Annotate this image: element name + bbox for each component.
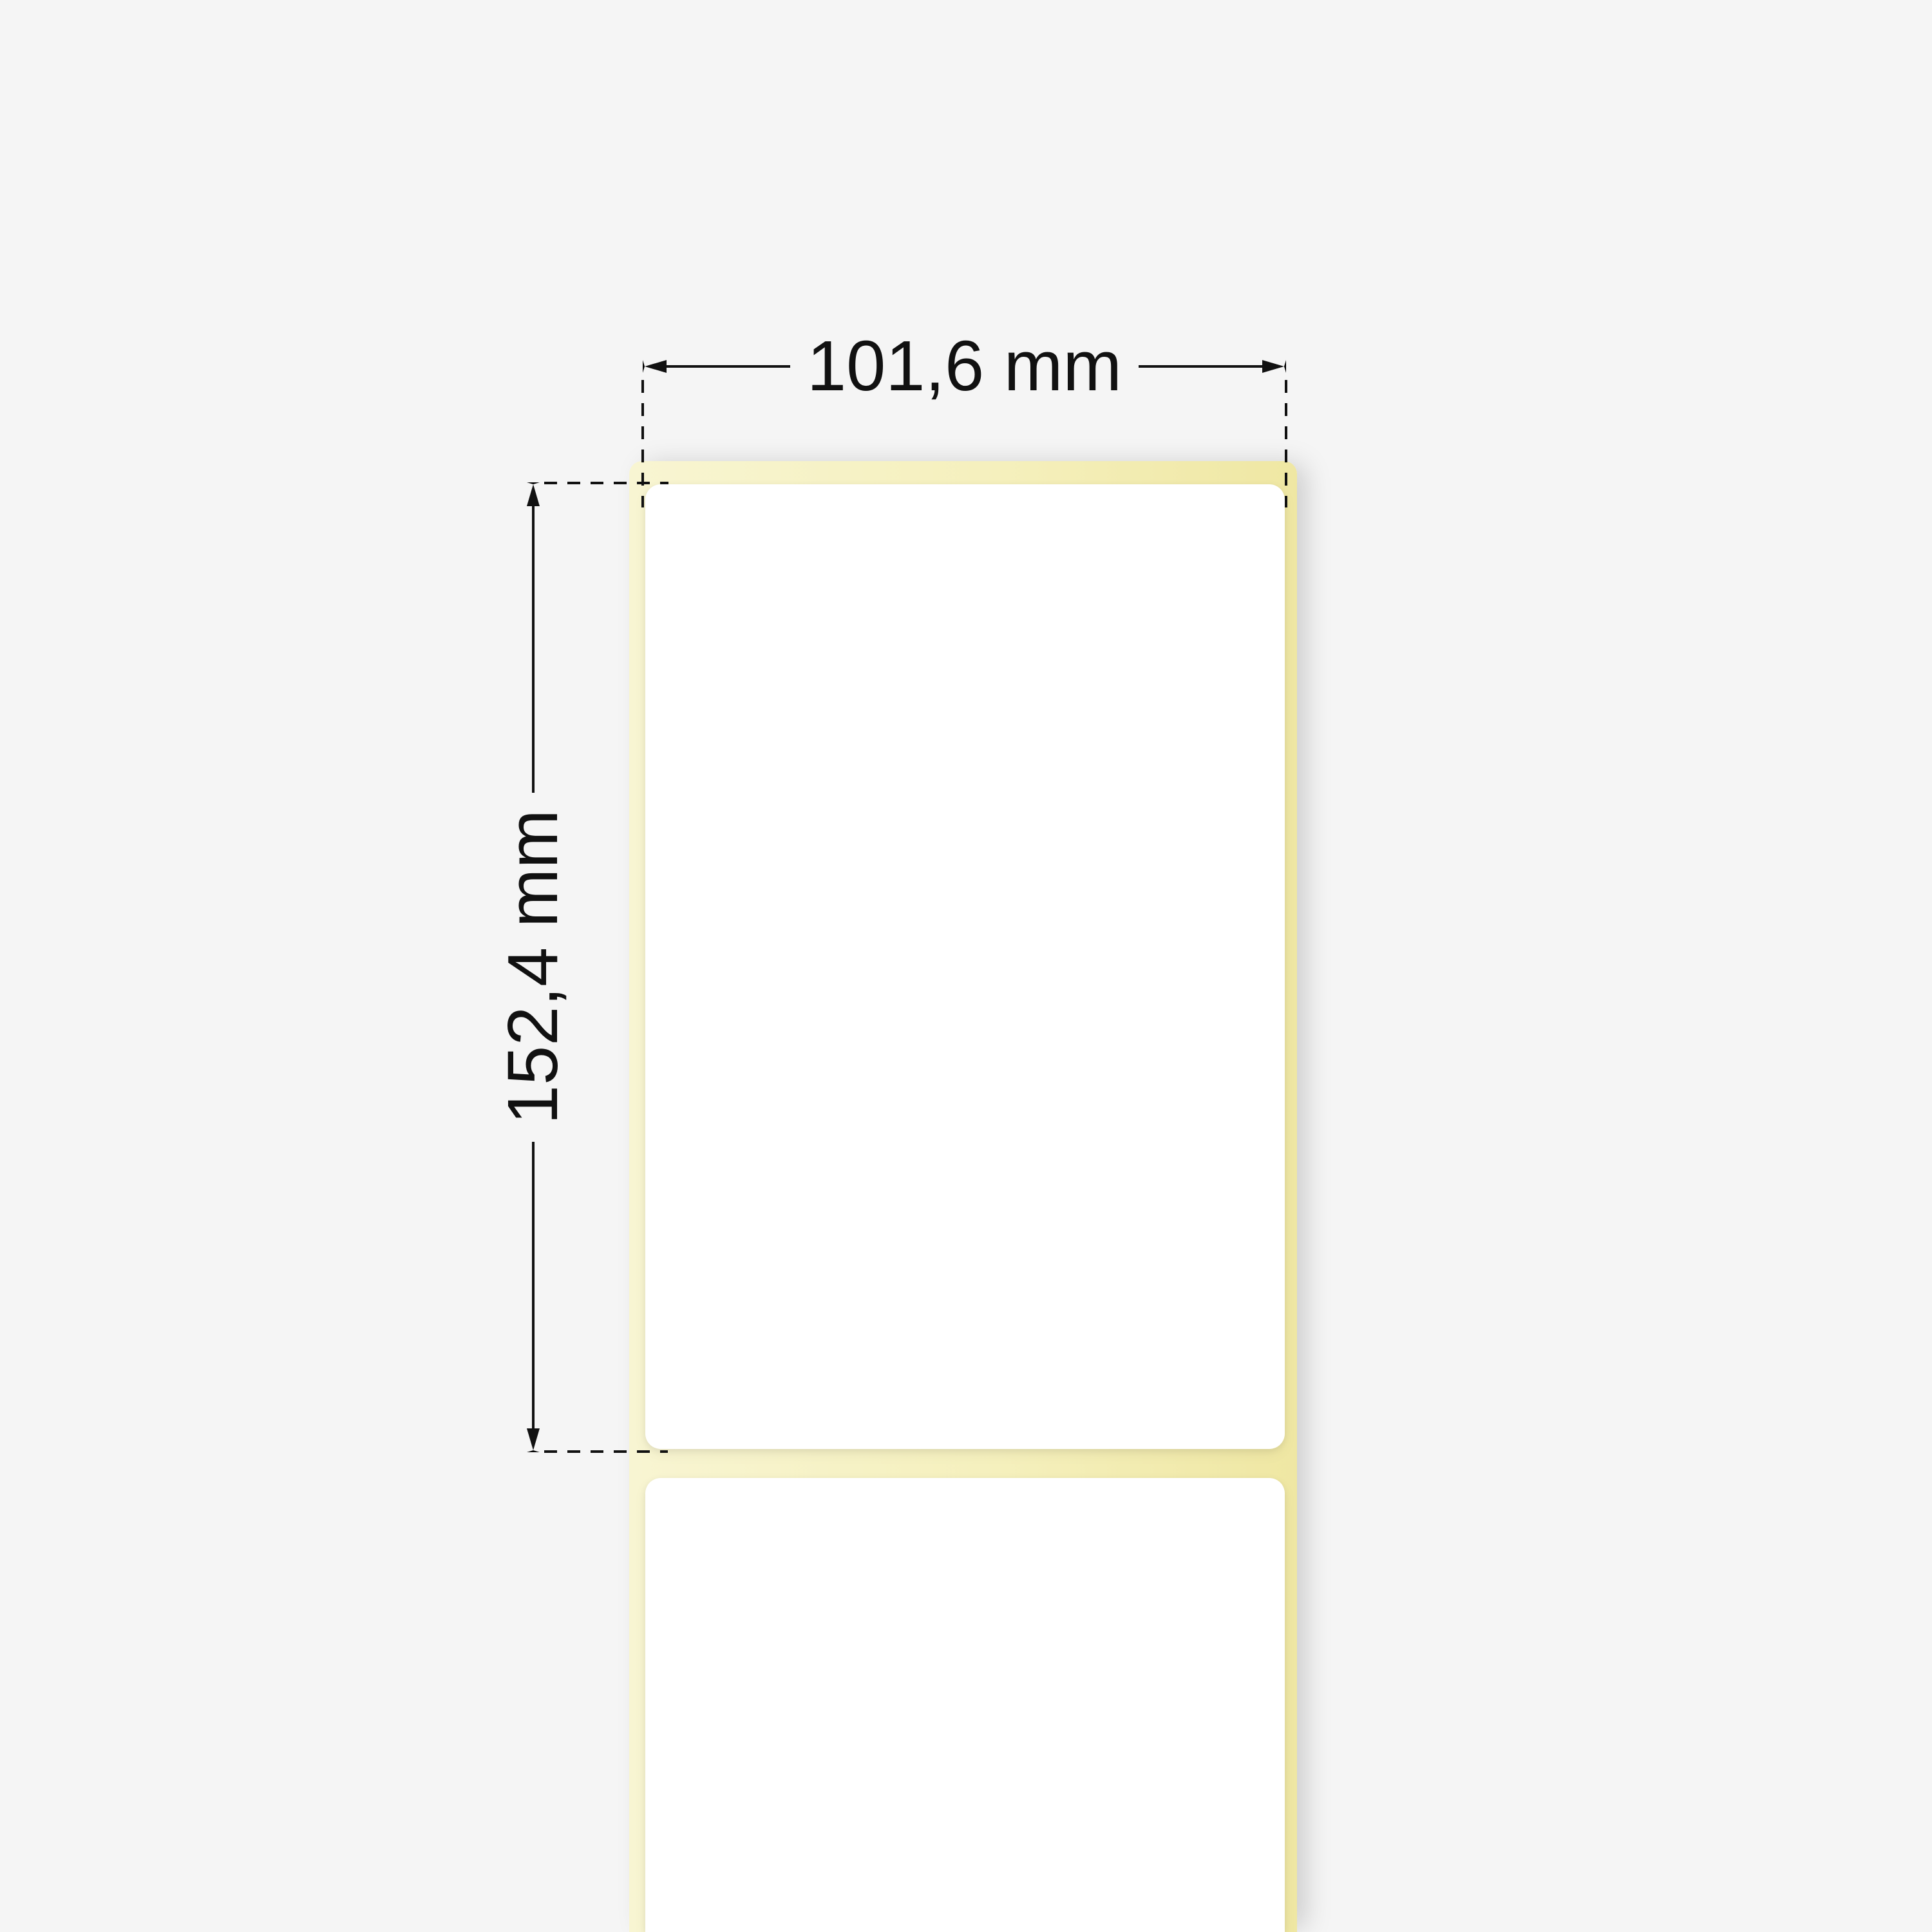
arrow-left-icon xyxy=(643,360,667,373)
dimension-line-segment xyxy=(667,365,790,368)
arrow-right-icon xyxy=(1262,360,1286,373)
dimension-line-segment xyxy=(1139,365,1262,368)
arrow-up-icon xyxy=(527,482,540,506)
dimension-line-segment xyxy=(532,506,535,793)
label-blank-top xyxy=(645,484,1285,1449)
arrow-down-icon xyxy=(527,1428,540,1452)
height-dimension-label: 152,4 mm xyxy=(498,810,569,1124)
width-dimension-label: 101,6 mm xyxy=(807,331,1122,402)
width-dimension: 101,6 mm xyxy=(643,318,1286,415)
height-dimension: 152,4 mm xyxy=(491,482,575,1452)
dimension-line-segment xyxy=(532,1142,535,1428)
label-blank-bottom xyxy=(645,1478,1285,1932)
label-dimension-diagram: 101,6 mm 152,4 mm xyxy=(0,0,1932,1932)
